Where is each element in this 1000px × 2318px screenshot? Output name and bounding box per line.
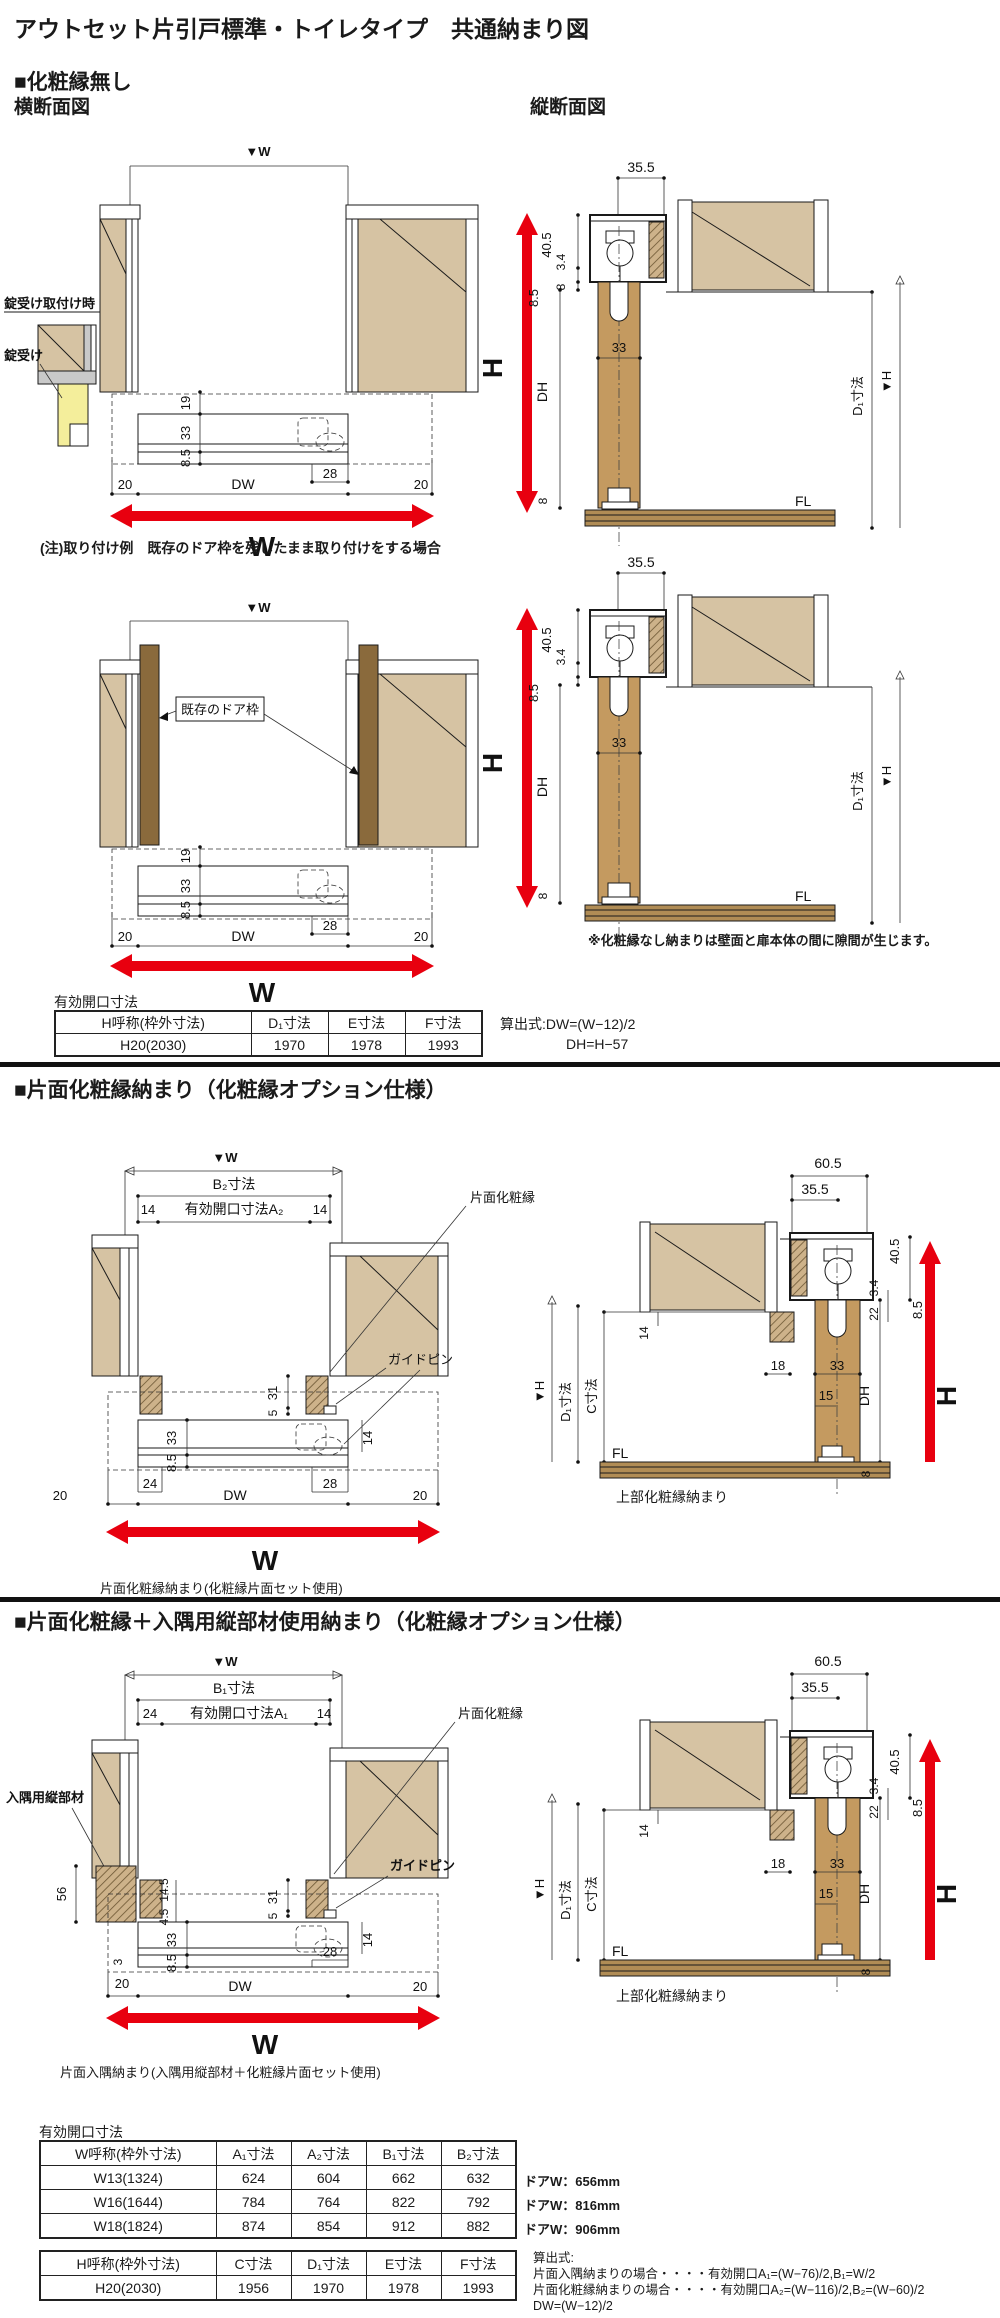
corner-member-label: 入隅用縦部材 — [6, 1790, 84, 1805]
ta-h4: B₂寸法 — [441, 2141, 516, 2166]
formula1: 算出式:DW=(W−12)/2 — [500, 1014, 635, 1034]
door-w-note-0: ドアW：656mm — [524, 2170, 620, 2194]
dim-8-5b: 8.5 — [178, 901, 193, 919]
dim-4-5: 4.5 — [157, 1908, 171, 1925]
ta-r0c3: 662 — [366, 2166, 441, 2190]
dim-d1d: D₁寸法 — [558, 1880, 573, 1920]
dim-14-pin2: 14 — [360, 1933, 375, 1947]
dim-3-4: 3.4 — [554, 253, 568, 270]
section-divider-2 — [0, 1597, 1000, 1602]
dim-dh: DH — [534, 382, 550, 402]
formula-line-1: 片面入隅納まりの場合・・・・有効開口A₁=(W−76)/2,B₁=W/2 — [533, 2266, 924, 2282]
bottom-formulas: 算出式: 片面入隅納まりの場合・・・・有効開口A₁=(W−76)/2,B₁=W/… — [533, 2250, 924, 2314]
ta-r2c3: 912 — [366, 2214, 441, 2239]
dim-5b: 5 — [266, 1912, 280, 1919]
dim-8-5c: 8.5 — [526, 684, 541, 702]
dim-20-left: 20 — [118, 477, 132, 492]
dim-20b-right: 20 — [414, 929, 428, 944]
t1-c1: 1970 — [251, 1034, 328, 1057]
vertical-section-no-trim2: 35.5 33 FL H 40.5 3.4 8.5 DH 8 D₁寸法 ▼H — [477, 554, 904, 941]
dim-14-pin: 14 — [360, 1431, 375, 1445]
dim-20-right: 20 — [414, 477, 428, 492]
sec2-vert-caption: 上部化粧縁納まり — [616, 1487, 728, 1507]
dim-14c: 14 — [317, 1706, 331, 1721]
t1-h1: D₁寸法 — [251, 1011, 328, 1034]
tb-c1: 1956 — [216, 2276, 291, 2301]
t1-h3: F寸法 — [405, 1011, 482, 1034]
cross-section-corner-member: ▼W B₁寸法 24 有効開口寸法A₁ 14 入隅用縦部材 片面化粧縁 ガイドピ… — [6, 1654, 523, 2060]
w-arrow2 — [110, 954, 434, 978]
guide-pin-label2: ガイドピン — [390, 1858, 455, 1873]
dim-14v: 14 — [637, 1326, 651, 1340]
dim-b2: B₂寸法 — [213, 1176, 256, 1192]
cross-section-retrofit: ▼W 既存のドア枠 19 33 8.5 28 20 DW 20 W — [100, 600, 478, 1008]
door-width-notes: ドアW：656mm ドアW：816mm ドアW：906mm — [524, 2170, 620, 2242]
dim-20c-right: 20 — [413, 1488, 427, 1503]
dim-hvc: ▼H — [532, 1381, 547, 1403]
wall-left — [100, 219, 126, 392]
lock-detail-dashed — [298, 418, 328, 446]
table-row: W16(1644) 784 764 822 792 — [40, 2190, 516, 2214]
vertical-section-one-side-trim: 60.5 35.5 14 ▼H D₁寸法 C寸法 40.5 3.4 22 8.5… — [532, 1155, 962, 1494]
dim-3: 3 — [111, 1958, 125, 1965]
dim-60-5b: 60.5 — [814, 1653, 841, 1669]
ta-r1c4: 792 — [441, 2190, 516, 2214]
h-arrow4 — [919, 1739, 941, 1960]
table-row: W18(1824) 874 854 912 882 — [40, 2214, 516, 2239]
dim-35-5d: 35.5 — [801, 1679, 828, 1695]
t1-c0: H20(2030) — [55, 1034, 251, 1057]
h-arrow3 — [919, 1241, 941, 1462]
roller — [607, 240, 633, 266]
dim-dwc: DW — [223, 1487, 247, 1503]
tb-c0: H20(2030) — [40, 2276, 216, 2301]
fl-label: FL — [795, 493, 812, 509]
dim-28c: 28 — [323, 1476, 337, 1491]
dim-hv: ▼H — [879, 371, 894, 393]
tb-c2: 1970 — [291, 2276, 366, 2301]
floor — [585, 510, 835, 526]
h-arrow2 — [516, 608, 538, 908]
fl-label3: FL — [612, 1445, 629, 1461]
h-label2: H — [477, 753, 508, 773]
ta-r0c4: 632 — [441, 2166, 516, 2190]
ta-r1c2: 764 — [291, 2190, 366, 2214]
ta-r1c3: 822 — [366, 2190, 441, 2214]
ta-r2c1: 874 — [216, 2214, 291, 2239]
dim-56: 56 — [54, 1887, 69, 1901]
w-arrow — [110, 504, 434, 528]
retrofit-note: (注)取り付け例 既存のドア枠を残したまま取り付けをする場合 — [40, 538, 441, 558]
w-label2: W — [249, 977, 276, 1008]
dim-20d-left: 20 — [115, 1976, 129, 1991]
dim-24b: 24 — [143, 1706, 157, 1721]
h-label: H — [477, 358, 508, 378]
dim-33c: 33 — [612, 735, 626, 750]
tb-h4: F寸法 — [441, 2251, 516, 2276]
dim-8-5f: 8.5 — [164, 1954, 179, 1972]
dim-8-5v: 8.5 — [526, 289, 541, 307]
cross-section-no-trim: ▼W 19 33 8.5 28 20 DW 20 W 錠受け取付け時 — [4, 144, 478, 562]
dim-8-5d: 8.5 — [164, 1454, 179, 1472]
tb-h1: C寸法 — [216, 2251, 291, 2276]
dim-dwb: DW — [231, 928, 255, 944]
dim-dhd: DH — [856, 1884, 872, 1904]
cross-section-one-side-trim: ▼W B₂寸法 14 有効開口寸法A₂ 14 片面化粧縁 ガイドピン 31 5 … — [53, 1150, 535, 1576]
fl-label4: FL — [612, 1943, 629, 1959]
dim-d1: D₁寸法 — [850, 376, 865, 416]
sec1-cross-title: 横断面図 — [14, 92, 90, 119]
dim-60-5: 60.5 — [814, 1155, 841, 1171]
tb-c4: 1993 — [441, 2276, 516, 2301]
table-row: W13(1324) 624 604 662 632 — [40, 2166, 516, 2190]
dim-35-5: 35.5 — [627, 159, 654, 175]
dim-33d: 33 — [164, 1431, 179, 1445]
guide-pin2 — [324, 1910, 336, 1918]
dim-28: 28 — [323, 466, 337, 481]
tb-c3: 1978 — [366, 2276, 441, 2301]
wall-left3 — [92, 1248, 120, 1376]
dim-8-5e: 8.5 — [910, 1301, 925, 1319]
ta-r2c0: W18(1824) — [40, 2214, 216, 2239]
dim-33g: 33 — [830, 1856, 844, 1871]
h-label4: H — [931, 1884, 962, 1904]
sec3-vert-caption: 上部化粧縁納まり — [616, 1986, 728, 2006]
dim-20d-right: 20 — [413, 1979, 427, 1994]
dim-19b: 19 — [178, 849, 193, 863]
door-w-note-2: ドアW：906mm — [524, 2218, 620, 2242]
dim-d1c: D₁寸法 — [558, 1382, 573, 1422]
opening-size-table-w: W呼称(枠外寸法) A₁寸法 A₂寸法 B₁寸法 B₂寸法 W13(1324) … — [39, 2140, 517, 2239]
dim-hvb: ▼H — [879, 766, 894, 788]
table-row: H20(2030) 1956 1970 1978 1993 — [40, 2276, 516, 2301]
dim-14-right: 14 — [313, 1202, 327, 1217]
dim-28d: 28 — [323, 1944, 337, 1959]
wall-left2 — [100, 674, 126, 847]
page-title: アウトセット片引戸標準・トイレタイプ 共通納まり図 — [14, 10, 589, 44]
dim-33e: 33 — [830, 1358, 844, 1373]
existing-frame-label: 既存のドア枠 — [181, 702, 259, 717]
dim-33-door: 33 — [612, 340, 626, 355]
wall-right — [358, 219, 466, 392]
dim-33b: 33 — [178, 879, 193, 893]
one-side-trim-label: 片面化粧縁 — [470, 1190, 535, 1205]
sec2-heading: ■片面化粧縁納まり（化粧縁オプション仕様） — [14, 1074, 447, 1104]
w-arrow3 — [106, 1520, 440, 1544]
dim-40-5: 40.5 — [539, 232, 554, 257]
guide-pin — [324, 1406, 336, 1414]
dim-dhc: DH — [856, 1386, 872, 1406]
dim-8c: 8 — [859, 1470, 873, 1477]
dim-40-5b: 40.5 — [539, 627, 554, 652]
dim-14-left: 14 — [141, 1202, 155, 1217]
dim-d1b: D₁寸法 — [850, 771, 865, 811]
dim-31b: 31 — [265, 1890, 280, 1904]
dim-3-4b: 3.4 — [554, 648, 568, 665]
t1-c3: 1993 — [405, 1034, 482, 1057]
vertical-section-corner-member: 60.5 35.5 14 ▼H D₁寸法 C寸法 40.5 3.4 22 8.5… — [532, 1653, 962, 1992]
table1-title: 有効開口寸法 — [54, 992, 138, 1012]
tb-h3: E寸法 — [366, 2251, 441, 2276]
dim-a2: 有効開口寸法A₂ — [185, 1201, 284, 1217]
dim-dwd: DW — [228, 1978, 252, 1994]
existing-frame-left — [140, 645, 159, 845]
ta-r2c4: 882 — [441, 2214, 516, 2239]
dim-31: 31 — [265, 1386, 280, 1400]
sec3-cross-caption: 片面入隅納まり(入隅用縦部材＋化粧縁片面セット使用) — [60, 2062, 381, 2081]
dim-35-5b: 35.5 — [627, 554, 654, 570]
ta-h1: A₁寸法 — [216, 2141, 291, 2166]
dim-b1: B₁寸法 — [213, 1680, 255, 1696]
bottom-table-title: 有効開口寸法 — [39, 2122, 123, 2142]
ta-r2c2: 854 — [291, 2214, 366, 2239]
guide-pin-label: ガイドピン — [388, 1352, 453, 1367]
dim-cb: C寸法 — [584, 1876, 599, 1911]
sec1-vert-title: 縦断面図 — [530, 92, 606, 119]
gap-note: ※化粧縁なし納まりは壁面と扉本体の間に隙間が生じます。 — [588, 930, 937, 949]
ta-r0c0: W13(1324) — [40, 2166, 216, 2190]
dim-c: C寸法 — [584, 1378, 599, 1413]
dim-3-4c: 3.4 — [867, 1279, 881, 1296]
dim-22b: 22 — [867, 1805, 881, 1819]
ta-h2: A₂寸法 — [291, 2141, 366, 2166]
w-label3: W — [252, 1545, 279, 1576]
formula-line-0: 算出式: — [533, 2250, 924, 2266]
dim-a1: 有効開口寸法A₁ — [190, 1705, 288, 1721]
sec3-heading: ■片面化粧縁＋入隅用縦部材使用納まり（化粧縁オプション仕様） — [14, 1606, 636, 1636]
ta-h0: W呼称(枠外寸法) — [40, 2141, 216, 2166]
dim-19: 19 — [178, 396, 193, 410]
dim-14-5: 14.5 — [157, 1878, 171, 1902]
dim-8-5: 8.5 — [178, 449, 193, 467]
dim-14w: 14 — [637, 1824, 651, 1838]
w-label4: W — [252, 2029, 279, 2060]
dim-24: 24 — [143, 1476, 157, 1491]
dim-dw: DW — [231, 476, 255, 492]
w-arrow4 — [106, 2006, 440, 2030]
table-row: H20(2030) 1970 1978 1993 — [55, 1034, 482, 1057]
w-top-marker3: ▼W — [212, 1150, 238, 1165]
floor2 — [600, 1462, 890, 1478]
trim-left — [140, 1376, 162, 1414]
upper-trim — [770, 1312, 794, 1342]
dim-35-5c: 35.5 — [801, 1181, 828, 1197]
dim-8-5g: 8.5 — [910, 1799, 925, 1817]
opening-size-table-1: H呼称(枠外寸法) D₁寸法 E寸法 F寸法 H20(2030) 1970 19… — [54, 1010, 483, 1057]
door-w-note-1: ドアW：816mm — [524, 2194, 620, 2218]
tb-h2: D₁寸法 — [291, 2251, 366, 2276]
section-divider-1 — [0, 1062, 1000, 1067]
t1-h0: H呼称(枠外寸法) — [55, 1011, 251, 1034]
formula-line-3: DW=(W−12)/2 — [533, 2298, 924, 2314]
dim-8d: 8 — [859, 1968, 873, 1975]
ta-r1c0: W16(1644) — [40, 2190, 216, 2214]
h-arrow — [516, 213, 538, 513]
formula2: DH=H−57 — [566, 1036, 628, 1052]
w-top-marker: ▼W — [245, 144, 271, 159]
w-top-marker2: ▼W — [245, 600, 271, 615]
h-label3: H — [931, 1386, 962, 1406]
tb-h0: H呼称(枠外寸法) — [40, 2251, 216, 2276]
wall-head-band — [100, 205, 140, 219]
ta-r1c1: 784 — [216, 2190, 291, 2214]
lock-receiver-label: 錠受け — [4, 348, 43, 363]
existing-frame-right — [359, 645, 378, 845]
t1-c2: 1978 — [328, 1034, 405, 1057]
dim-20c-left: 20 — [53, 1488, 67, 1503]
ta-h3: B₁寸法 — [366, 2141, 441, 2166]
dim-8b: 8 — [536, 892, 550, 899]
sec2-cross-caption: 片面化粧縁納まり(化粧縁片面セット使用) — [100, 1578, 343, 1597]
dim-33f: 33 — [164, 1933, 179, 1947]
dim-22: 22 — [867, 1307, 881, 1321]
dim-40-5c: 40.5 — [887, 1239, 902, 1264]
formula-line-2: 片面化粧縁納まりの場合・・・・有効開口A₂=(W−116)/2,B₂=(W−60… — [533, 2282, 924, 2298]
dim-hvd: ▼H — [532, 1879, 547, 1901]
ta-r0c1: 624 — [216, 2166, 291, 2190]
dim-8-bottom: 8 — [536, 497, 550, 504]
drawing-sheet: ▼W 19 33 8.5 28 20 DW 20 W 錠受け取付け時 — [0, 0, 1000, 2318]
dim-40-5d: 40.5 — [887, 1749, 902, 1774]
t1-h2: E寸法 — [328, 1011, 405, 1034]
ta-r0c2: 604 — [291, 2166, 366, 2190]
w-top-marker4: ▼W — [212, 1654, 238, 1669]
dim-18: 18 — [771, 1358, 785, 1373]
dim-28b: 28 — [323, 918, 337, 933]
dim-5: 5 — [266, 1409, 280, 1416]
dim-20b-left: 20 — [118, 929, 132, 944]
dim-18b: 18 — [771, 1856, 785, 1871]
dim-3-4d: 3.4 — [867, 1777, 881, 1794]
one-side-trim-label2: 片面化粧縁 — [458, 1706, 523, 1721]
technical-drawing: ▼W 19 33 8.5 28 20 DW 20 W 錠受け取付け時 — [0, 0, 1000, 2318]
dim-15b: 15 — [819, 1886, 833, 1901]
lock-receiver-note: 錠受け取付け時 — [4, 296, 95, 311]
opening-size-table-h: H呼称(枠外寸法) C寸法 D₁寸法 E寸法 F寸法 H20(2030) 195… — [39, 2250, 517, 2301]
dim-dhb: DH — [534, 777, 550, 797]
fl-label2: FL — [795, 888, 812, 904]
dim-33: 33 — [178, 426, 193, 440]
vertical-section-no-trim: 35.5 33 FL H 40.5 3.4 8.5 8 DH 8 D₁寸法 ▼H — [477, 159, 904, 546]
dim-15: 15 — [819, 1388, 833, 1403]
wall-left5 — [92, 1753, 120, 1878]
